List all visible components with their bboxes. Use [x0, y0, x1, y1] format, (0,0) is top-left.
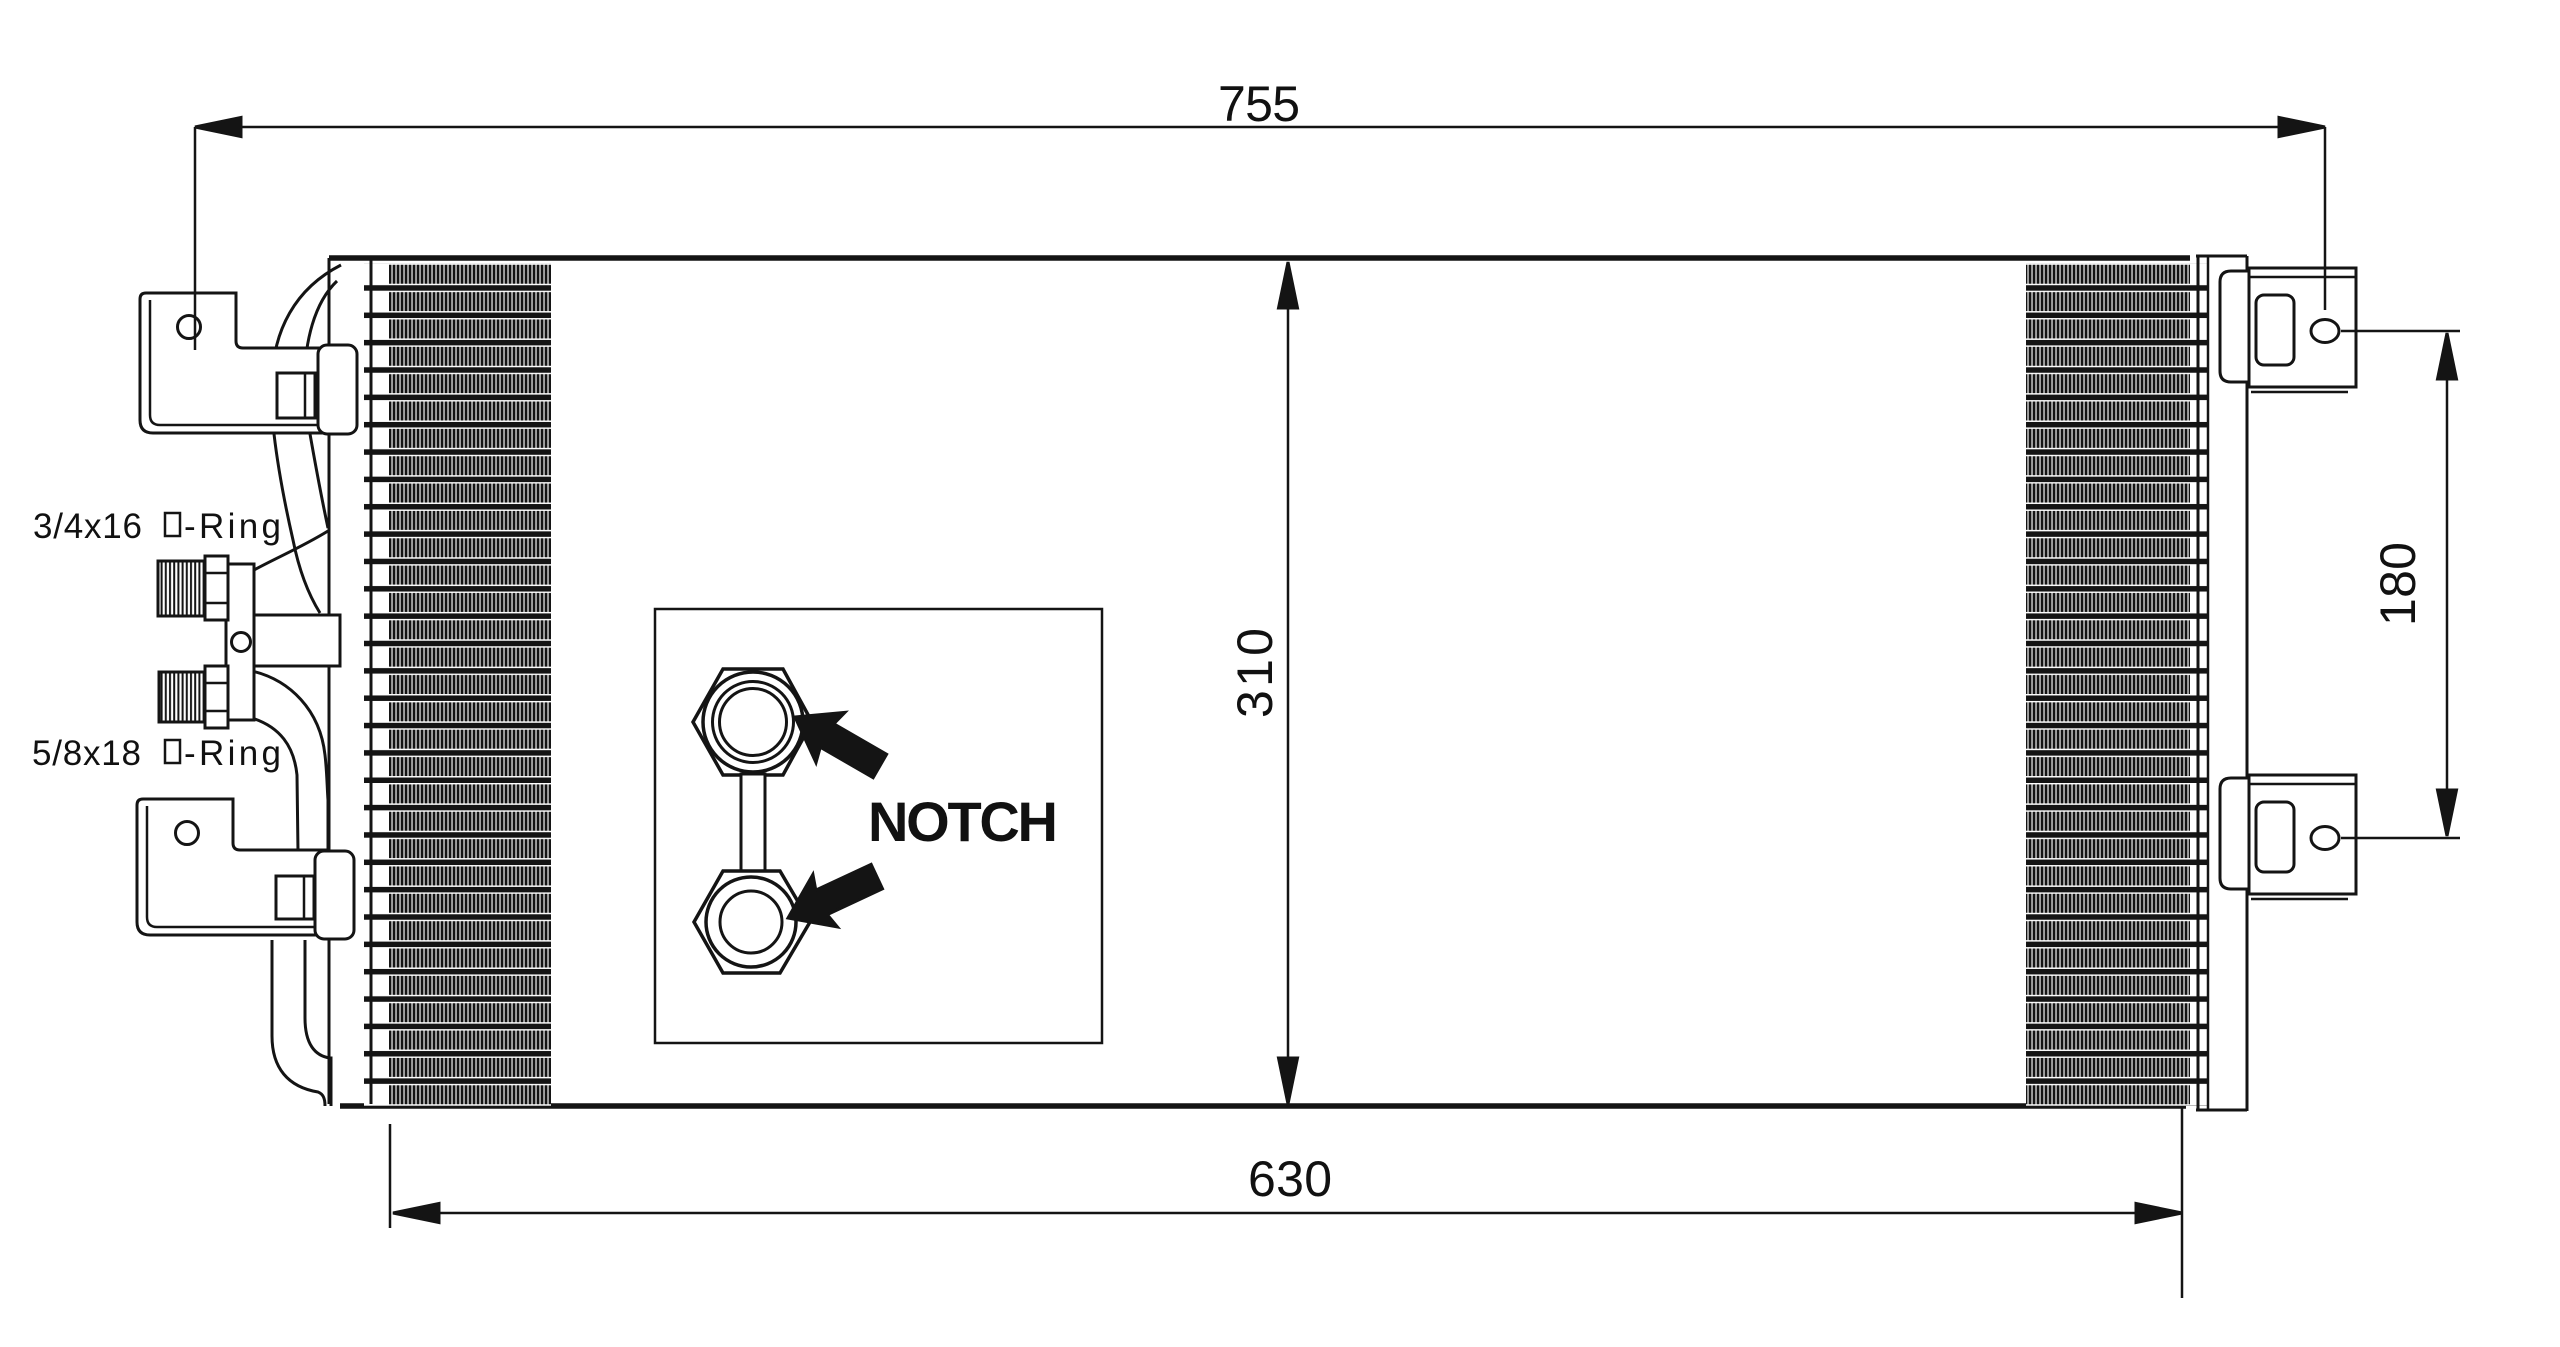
svg-text:755: 755 — [1218, 76, 1300, 132]
svg-text:5/8x18: 5/8x18 — [32, 734, 141, 773]
svg-text:180: 180 — [2370, 542, 2426, 626]
svg-text:630: 630 — [1248, 1151, 1332, 1207]
svg-text:310: 310 — [1227, 628, 1283, 718]
svg-text:-Ring: -Ring — [184, 734, 281, 773]
svg-text:-Ring: -Ring — [184, 507, 281, 546]
svg-text:NOTCH: NOTCH — [868, 790, 1058, 853]
svg-text:3/4x16: 3/4x16 — [33, 507, 142, 546]
